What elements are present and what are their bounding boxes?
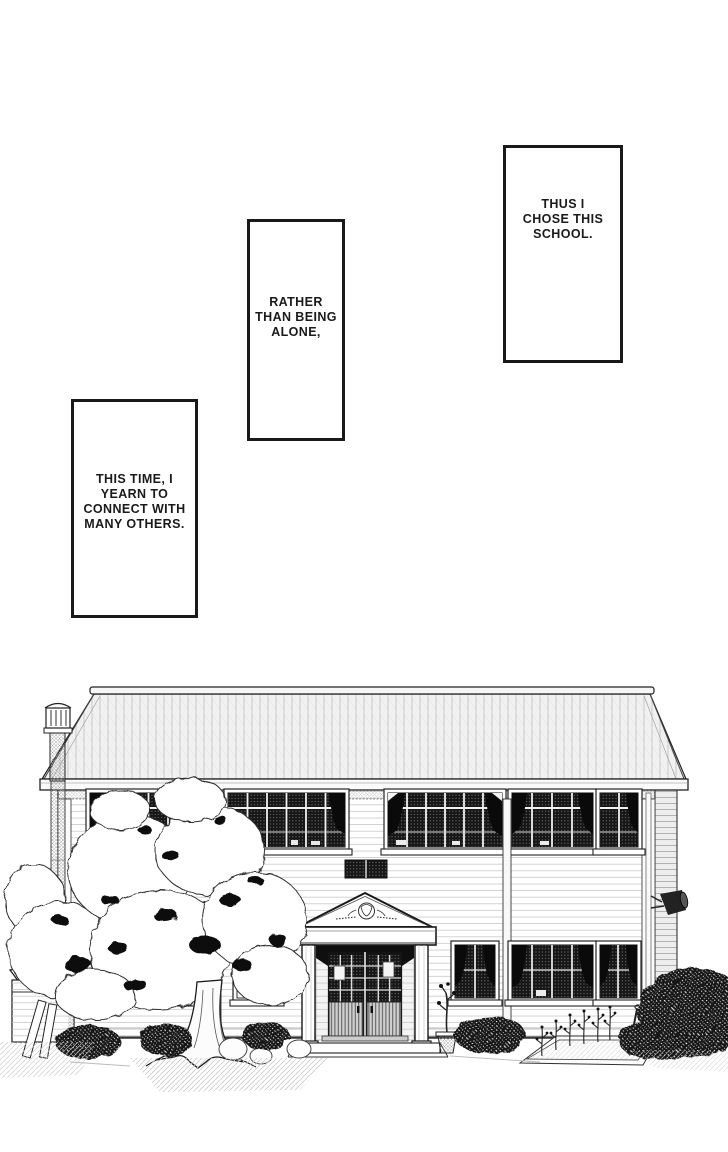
- manga-page: THUS I CHOSE THIS SCHOOL. RATHER THAN BE…: [0, 0, 728, 1152]
- entrance-doors: [322, 952, 408, 1041]
- narration-text-2: RATHER THAN BEING ALONE,: [250, 295, 342, 340]
- narration-panel-3: THIS TIME, I YEARN TO CONNECT WITH MANY …: [71, 399, 198, 618]
- door-poster: [383, 962, 394, 977]
- narration-text-3: THIS TIME, I YEARN TO CONNECT WITH MANY …: [74, 472, 195, 532]
- vent-cap: [45, 704, 71, 709]
- name-plaque: [345, 860, 387, 878]
- window-bank: [505, 941, 600, 1006]
- narration-text-1: THUS I CHOSE THIS SCHOOL.: [506, 197, 620, 242]
- narration-panel-1: THUS I CHOSE THIS SCHOOL.: [503, 145, 623, 363]
- entrance-step: [288, 1043, 448, 1057]
- window-bank: [505, 789, 600, 855]
- porch-entablature: [294, 927, 436, 945]
- ridge-cap: [90, 687, 654, 694]
- window-bank: [593, 789, 645, 855]
- roof: [40, 687, 688, 790]
- narration-panel-2: RATHER THAN BEING ALONE,: [247, 219, 345, 441]
- door-poster: [334, 966, 345, 980]
- school-building-illustration: [0, 650, 728, 1120]
- window-bank: [381, 789, 509, 855]
- window-small: [448, 941, 502, 1006]
- window-small: [593, 941, 644, 1006]
- eave-fascia: [40, 779, 688, 790]
